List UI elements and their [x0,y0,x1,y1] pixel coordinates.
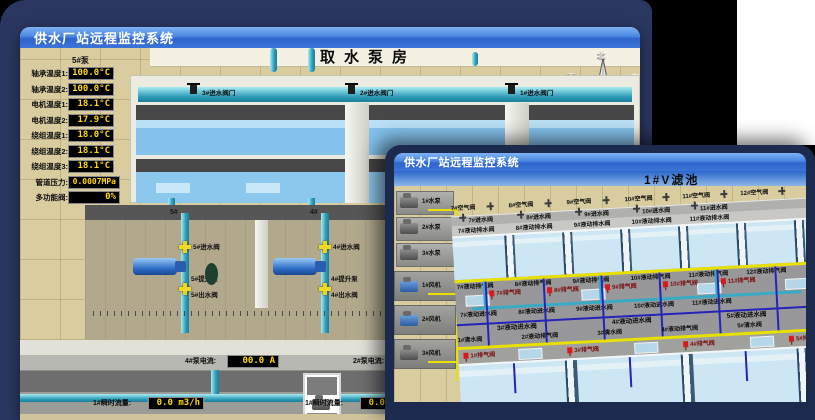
exhaust-valve-icon[interactable] [663,281,668,287]
inlet-valve-icon[interactable] [691,201,698,209]
valve-label: 11#空气阀 [682,193,710,200]
valve-label: 4#液动排气阀 [661,326,698,334]
panel-label: 电机温度2: [28,117,68,125]
equipment-tank [205,263,218,285]
bay-pump-label: 4#提升泵 [331,277,358,284]
bay-inlet-label: 5#进水阀 [193,245,220,252]
feed-pipe-yellow [428,361,456,363]
pipe-stub [211,370,219,394]
background-patch [737,0,815,145]
front-window-title: 供水厂站远程监控系统 [404,154,519,170]
bay-number: 4# [310,209,318,216]
clean-water-tank [518,348,543,360]
outlet-valve-icon[interactable] [319,283,331,295]
valve-label: 12#空气阀 [740,190,768,197]
filter-grid: 7#空气阀 8#空气阀 9#空气阀 10#空气阀 11#空气阀 12#空气阀 7 [451,185,806,402]
back-window-title: 供水厂站远程监控系统 [34,28,174,47]
air-valve-icon[interactable] [662,193,669,201]
panel-label: 多功能阀: [28,194,68,202]
exhaust-valve-icon[interactable] [605,284,610,290]
panel-label: 轴承温度2: [28,86,68,94]
pool-water-light [246,183,280,193]
valve-label: 3#排气阀 [574,347,599,354]
equipment-label: 1#风机 [422,283,441,289]
sky [394,171,806,186]
pool-divider [345,103,369,203]
clean-water-tank [785,278,806,290]
bay-inlet-label: 4#进水阀 [333,245,360,252]
equipment-label: 2#水泵 [422,225,441,231]
pool-divider [794,220,806,264]
panel-value[interactable]: 100.0°C [68,83,114,96]
inlet-valve-label: 1#进水阀门 [520,91,553,98]
panel-value[interactable]: 100.0°C [68,67,114,80]
valve-label: 9#空气阀 [566,199,591,206]
inlet-valve-icon[interactable] [575,207,582,215]
valve-label: 3#液动进水阀 [497,324,537,333]
equipment-label: 3#水泵 [422,251,441,257]
pipe-stub [472,52,478,66]
valve-label: 10#排气阀 [670,281,698,288]
panel-label: 绕组温度1: [28,132,68,140]
valve-label: 5#清水阀 [737,322,762,329]
valve-label: 9#排气阀 [612,284,637,291]
flow-label: 1#瞬时流量: [93,400,131,407]
bay-number: 5# [170,209,178,216]
bay-divider [255,220,268,308]
panel-value[interactable]: 0% [68,191,120,204]
panel-label: 绕组温度3: [28,163,68,171]
flow-value[interactable]: 0.0 m3/h [148,397,204,410]
scene-title: 取水泵房 [320,50,416,65]
air-valve-icon[interactable] [486,202,493,210]
cabinet [303,373,341,420]
valve-label: 11#排气阀 [728,278,756,285]
valve-label: 8#排气阀 [554,287,579,294]
blower-icon[interactable] [400,349,418,360]
valve-label: 10#液动进水阀 [634,302,674,310]
valve-label: 10#空气阀 [624,196,652,203]
water-pump-icon[interactable] [400,197,418,208]
bay-outlet-label: 5#出水阀 [191,293,218,300]
current-label: 2#泵电流: [353,358,384,365]
panel-value[interactable]: 17.9°C [68,114,114,127]
equipment-label: 1#水泵 [422,199,441,205]
valve-label: 1#清水阀 [458,337,483,344]
outlet-valve-icon[interactable] [179,283,191,295]
valve-label: 4#排气阀 [690,341,715,348]
exhaust-valve-icon[interactable] [721,278,726,284]
inlet-valve-label: 3#进水阀门 [202,91,235,98]
pipe-stub [270,48,277,72]
exhaust-valve-icon[interactable] [463,353,468,359]
valve-label: 11#液动进水阀 [692,299,732,307]
scene-title: 1#V滤池 [644,174,699,186]
valve-label: 8#液动进水阀 [518,308,555,316]
pool-wall [136,105,634,120]
inlet-valve-icon[interactable] [459,214,466,222]
valve-label: 8#空气阀 [509,202,534,209]
pump-icon[interactable] [273,258,317,275]
pool-water-light [156,183,190,193]
valve-label: 5#排气阀 [796,335,806,342]
exhaust-valve-icon[interactable] [683,341,688,347]
gate-valve-icon[interactable] [508,83,515,94]
air-valve-icon[interactable] [544,199,551,207]
front-window: 供水厂站远程监控系统 1#V滤池 1#水泵 2#水泵 3#水泵 [385,145,815,420]
inlet-valve-icon[interactable] [319,241,331,253]
cabinet-panel [307,377,337,395]
stage: 供水厂站远程监控系统 取水泵房 5#泵 轴承温度1: 100.0°C 轴承温度2… [0,0,815,420]
valve-label: 12#液动排气阀 [746,268,786,276]
inlet-valve-icon[interactable] [179,241,191,253]
valve-label: 1#排气阀 [470,352,495,359]
exhaust-valve-icon[interactable] [547,287,552,293]
compass-north: 北 [597,52,605,60]
panel-label: 轴承温度1: [28,70,68,78]
exhaust-valve-icon[interactable] [567,347,572,353]
valve-label: 9#液动进水阀 [576,305,613,313]
inlet-valve-icon[interactable] [517,211,524,219]
panel-label: 管道压力: [28,179,68,187]
blower-icon[interactable] [400,281,418,292]
current-label: 4#泵电流: [185,358,216,365]
inlet-valve-icon[interactable] [633,204,640,212]
panel-value[interactable]: 18.1°C [68,98,114,111]
pump-icon[interactable] [133,258,177,275]
flow-label: 1#瞬时流量: [305,400,343,407]
bay-outlet-label: 4#出水阀 [331,293,358,300]
clean-water-tank [750,336,775,348]
panel-label: 绕组温度2: [28,148,68,156]
valve-label: 7#空气阀 [451,205,476,212]
gate-valve-icon[interactable] [190,83,197,94]
gate-valve-icon[interactable] [348,83,355,94]
valve-label: 4#液动进水阀 [612,318,652,327]
equipment-label: 2#风机 [422,317,441,323]
water-pump-icon[interactable] [400,249,418,260]
air-valve-icon[interactable] [778,187,785,195]
valve-label: 5#液动进水阀 [727,312,767,321]
current-value[interactable]: 00.0 A [227,355,279,368]
air-valve-icon[interactable] [602,196,609,204]
valve-label: 2#液动排气阀 [521,333,558,341]
valve-label: 7#排气阀 [496,290,521,297]
air-valve-icon[interactable] [720,190,727,198]
blue-pipe [774,266,780,333]
valve-label: 3#清水阀 [597,330,622,337]
panel-value[interactable]: 18.1°C [68,145,114,158]
blower-icon[interactable] [400,315,418,326]
clean-water-tank [634,342,659,354]
filter-pool-scene: 1#V滤池 1#水泵 2#水泵 3#水泵 1#风机 2#风机 3#风 [394,171,806,402]
panel-label: 电机温度1: [28,101,68,109]
exhaust-valve-icon[interactable] [789,336,794,342]
water-pump-icon[interactable] [400,223,418,234]
pipe-stub [308,48,315,72]
panel-value[interactable]: 0.0007MPa [68,176,120,189]
pool-divider [797,348,806,402]
panel-value[interactable]: 18.1°C [68,160,114,173]
feed-pipe-yellow [428,293,456,295]
equipment-label: 3#风机 [422,351,441,357]
panel-value[interactable]: 18.0°C [68,129,114,142]
valve-label: 7#液动进水阀 [460,311,497,319]
back-window-titlebar[interactable]: 供水厂站远程监控系统 [20,27,640,48]
front-window-titlebar[interactable]: 供水厂站远程监控系统 [394,153,806,171]
exhaust-valve-icon[interactable] [489,290,494,296]
inlet-valve-label: 2#进水阀门 [360,91,393,98]
pump-panel-header: 5#泵 [72,57,89,65]
pool-water-light [136,120,634,128]
